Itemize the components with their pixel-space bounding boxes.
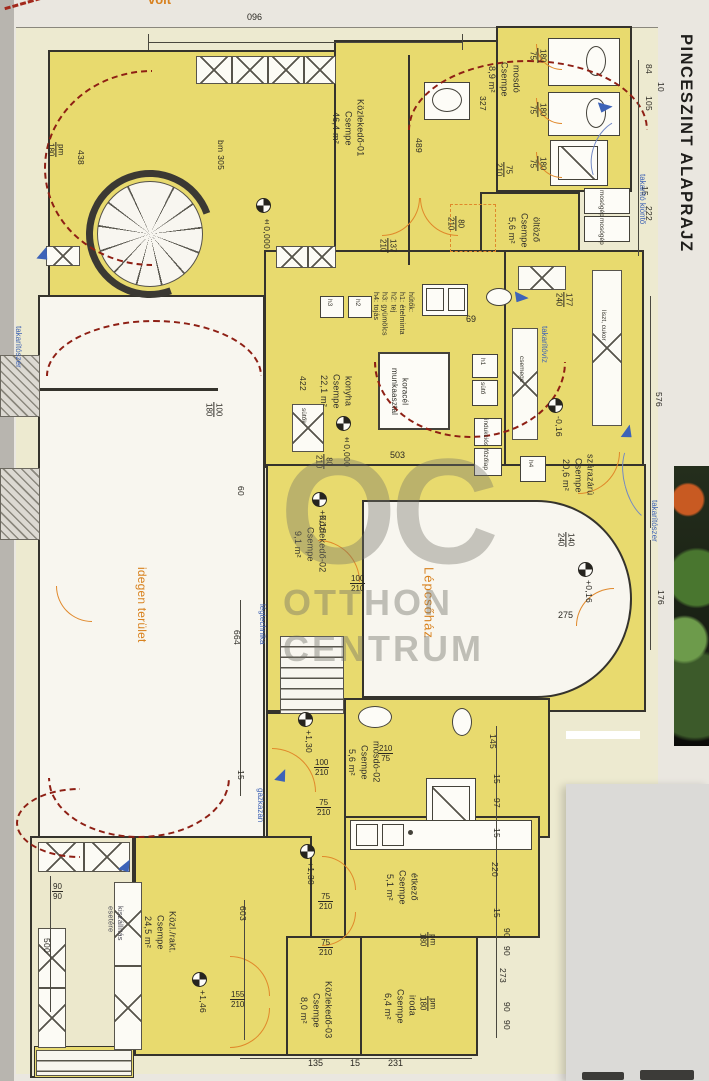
room-height: bm 305 [216,140,226,170]
dim: 84 [644,64,654,74]
door-dim: 18075 [528,102,547,117]
box-label: h3 [326,299,333,306]
room-finish: Csempe [310,966,322,1054]
dim: 180 [46,142,55,157]
shelf-label: csemege [518,356,525,382]
dim: 664 [232,630,242,645]
dim: 438 [76,150,86,165]
idegen-divider-wall [38,388,218,391]
sink-bowl [382,824,404,846]
note-takaritoszer: takarítószer [650,500,659,542]
dim-line [148,42,462,43]
note-takaritoszer: takarítószer [14,326,23,368]
dim: 210 [318,902,333,911]
background-edge [0,0,14,1081]
dim: 105 [644,96,654,111]
toilet-icon [452,708,472,736]
dim: 97 [492,798,502,808]
level-marker [578,562,593,577]
room-label-kozlekedo01: Közlekedő-01 Csempe 46,4 m² [330,88,366,168]
dim: 90 [502,928,512,938]
dim-line [650,540,651,650]
room-area: 24,5 m² [142,896,154,968]
dim: 75 [528,48,537,63]
room-area: 20,6 m² [560,442,572,508]
dim: 231 [388,1058,403,1068]
door-dim: 75210 [318,892,333,911]
room-label-kozlrakt: Közl./rakt. Csempe 24,5 m² [142,896,178,968]
dim: pm [427,996,437,1011]
room-name: öltöző [530,200,542,260]
washing-machine [584,188,630,214]
box-label: h4 [527,460,534,467]
vault-arc-curve [16,788,80,858]
room-name: Közlekedő-01 [354,88,366,168]
room-area: 8,0 m² [298,966,310,1054]
dim: 210 [494,162,503,177]
dim: 155 [230,990,245,1000]
dim: 180 [537,156,547,171]
level-label: ±0,000 [262,216,272,249]
photo-thumbnail [674,466,709,746]
dim-tick [462,34,463,50]
dim: 210 [446,216,455,231]
dim: 273 [498,968,508,983]
level-label: +0,16 [584,580,594,603]
dim: 180 [418,932,427,947]
dim: 75 [528,102,537,117]
room-label-idegen: idegen terület [134,540,150,670]
dim-line [496,726,497,1038]
rack-icon [38,928,66,988]
level-label: +1,30 [306,862,316,885]
dim: 60 [236,486,246,496]
box-label: sütők [300,408,307,424]
dim: 15 [492,908,502,918]
stair-flight [36,1050,132,1076]
vault-arc [16,788,80,858]
shelf-label: liszt, cukor [600,310,607,341]
room-area: 22,1 m² [318,358,330,424]
vault-arc-curve [44,70,152,266]
dim: 90 [52,882,63,892]
dim: 500 [42,938,52,953]
box-label: sütő [479,382,486,394]
room-label-mosdo02: mosdó-02 Csempe 5,6 m² [346,726,382,798]
room-label-etkezo: étkező Csempe 5,1 m² [384,854,420,920]
dim: 69 [466,314,476,324]
dim: 180 [418,996,427,1011]
dim: 137 [387,238,397,253]
door-dim: 18075 [528,156,547,171]
shelf-rack [518,266,566,290]
room-finish: Csempe [572,442,584,508]
room-name: Közlekedő-03 [322,966,334,1054]
note-takaritoviz: takarítóvíz [540,326,549,363]
cropped-handwriting: volt [148,0,388,5]
appliance-label: mosógép [598,218,605,245]
door-dim: 155210 [230,990,245,1009]
dim: 140 [565,532,575,547]
appliance-label: mosógép [598,190,605,217]
room-area: 5,1 m² [384,854,396,920]
cropped-print-text [582,1072,624,1080]
rack-icon [304,56,336,84]
equipment-text: munkaasztal [388,362,399,422]
room-label-iroda: iroda Csempe 6,4 m² [382,976,418,1036]
dim: 75 [318,892,333,902]
dim: 75 [316,798,331,808]
room-finish: Csempe [154,896,166,968]
room-finish: Csempe [394,976,406,1036]
dim: 240 [554,292,563,307]
dim: 422 [298,376,308,391]
level-marker [298,712,313,727]
room-area: 46,4 m² [330,88,342,168]
room-area: 5,6 m² [346,726,358,798]
fridge-legend: hűtők: h1: ételminta h2: tej h3: gyümölc… [370,292,414,344]
vault-arc [408,60,648,130]
faucet-icon [408,830,413,835]
level-marker [300,844,315,859]
dim: 275 [558,610,573,620]
dim: 100 [314,758,329,768]
room-name: étkező [408,854,420,920]
dim-tick [148,34,149,50]
white-marker-bar [566,731,640,739]
dim: 15 [350,1058,360,1068]
dim: 75 [503,162,513,177]
dim: 15 [492,828,502,838]
room-name: szárazárú [584,442,596,508]
rack-icon [232,56,268,84]
door-dim: 140240 [556,532,575,547]
exterior-wall-hatch [0,468,40,540]
level-label: +1,46 [198,990,208,1013]
rack-icon [308,246,336,268]
dim: 75 [528,156,537,171]
dim: 100 [213,402,223,417]
sink-bowl [426,288,444,311]
note-takarito-kionto: takarító kiöntő [638,174,647,224]
parapet-dim: pm180 [418,932,437,947]
legend-line: h1: ételminta [396,292,405,344]
shelf-liszt-cukor [592,270,622,426]
vault-arc [44,70,152,266]
legend-line: hűtők: [405,292,414,344]
watermark-text: OTTHON [283,582,453,624]
door-dim: 80210 [446,216,465,231]
dim: 80 [455,216,465,231]
rack-icon [38,988,66,1048]
dim: 096 [247,12,262,22]
page-title: PINCESZINT ALAPRAJZ [676,34,695,254]
worktable-label: koracél munkaasztal [388,362,410,422]
dim: 75 [318,938,333,948]
level-label: -0,16 [554,416,564,437]
level-marker [192,972,207,987]
room-finish: Csempe [518,200,530,260]
door-dim: 177240 [554,292,573,307]
dim: 210 [378,238,387,253]
door-dim: 100210 [314,758,329,777]
dim: 15 [236,770,246,780]
legend-line: h4: tojás [370,292,379,344]
box-label: h2 [354,299,361,306]
vault-arc-curve [408,60,648,130]
rack-icon [114,966,142,1050]
dim: 180 [537,48,547,63]
parapet-dim: pm180 [46,142,65,157]
dim: 177 [563,292,573,307]
dim: 603 [238,906,248,921]
legend-line: h2: tej [388,292,397,344]
parapet-dim: pm180 [418,996,437,1011]
room-finish: Csempe [342,88,354,168]
note-kiszallitas: kiszállítás esetére [106,906,125,962]
dim: 90 [502,1002,512,1012]
equipment-text: koracél [399,362,410,422]
room-label-oltozo: öltöző Csempe 5,6 m² [506,200,542,260]
dim: 576 [654,392,664,407]
room-label-konyha: konyha Csempe 22,1 m² [318,358,354,424]
room-name: iroda [406,976,418,1036]
dim: 90 [502,946,512,956]
level-marker [256,198,271,213]
room-finish: Csempe [330,358,342,424]
watermark-monogram: OC [280,448,493,576]
room-label-kozlekedo03: Közlekedő-03 Csempe 8,0 m² [298,966,334,1054]
room-name: mosdó-02 [370,726,382,798]
dim: 210 [316,808,331,817]
dim: pm [55,142,65,157]
dim: 210 [318,948,333,957]
dim: 90 [52,892,63,901]
level-marker [548,398,563,413]
dim: 180 [537,102,547,117]
dim: 15 [492,774,502,784]
dim: 210 [314,768,329,777]
box-label: h1 [479,358,486,365]
dim: 489 [414,138,424,153]
room-name: idegen terület [134,540,150,670]
round-sink-icon [486,288,512,306]
room-area: 6,4 m² [382,976,394,1036]
handwriting-text: volt [148,0,171,5]
door-dim: 75210 [494,162,513,177]
sink-bowl [448,288,465,311]
room-finish: Csempe [396,854,408,920]
room-area: 5,6 m² [506,200,518,260]
note-line: kiszállítás [115,906,124,962]
dim: 90 [502,1020,512,1030]
door-dim: 75210 [318,938,333,957]
rack-icon [276,246,308,268]
dim-line [650,296,651,528]
dim: 176 [656,590,666,605]
room-area: 8,9 m² [486,48,498,110]
door-dim: 100180 [204,402,223,417]
dim: 210 [230,1000,245,1009]
dim: pm [427,932,437,947]
dim-pair: 9090 [52,882,63,901]
room-label-szarazaru: szárazárú Csempe 20,6 m² [560,442,596,508]
dim-line [638,60,639,256]
legend-line: h3: gyümölcs [379,292,388,344]
dim: 135 [308,1058,323,1068]
room-finish: Csempe [498,48,510,110]
door-dim: 75210 [316,798,331,817]
room-name: Közl./rakt. [166,896,178,968]
dim: 220 [490,862,500,877]
rack-icon [196,56,232,84]
room-label-mosdo01: mosdó Csempe 8,9 m² [486,48,522,110]
dim: 180 [204,402,213,417]
dim: 240 [556,532,565,547]
door-dim: 18075 [528,48,547,63]
sink-bowl [356,824,378,846]
level-label: +1,30 [304,730,314,753]
note-gazkazan: gázkazán [256,788,265,822]
washing-machine [584,216,630,242]
rack-icon [268,56,304,84]
room-finish: Csempe [358,726,370,798]
door-dim: 137210 [378,238,397,253]
room-name: konyha [342,358,354,424]
note-line: esetére [106,906,115,962]
note-legtechnika: légtechnika [258,604,267,644]
overlay-card [566,784,709,1081]
cropped-print-text [640,1070,694,1080]
room-idegen-terulet [38,295,265,838]
watermark-text: CENTRUM [283,628,484,670]
vault-arc-curve [46,320,262,376]
dim: 10 [656,82,666,92]
dim: 145 [488,734,498,749]
washbasin-icon [358,706,392,728]
vault-arc [46,320,262,376]
room-name: mosdó [510,48,522,110]
